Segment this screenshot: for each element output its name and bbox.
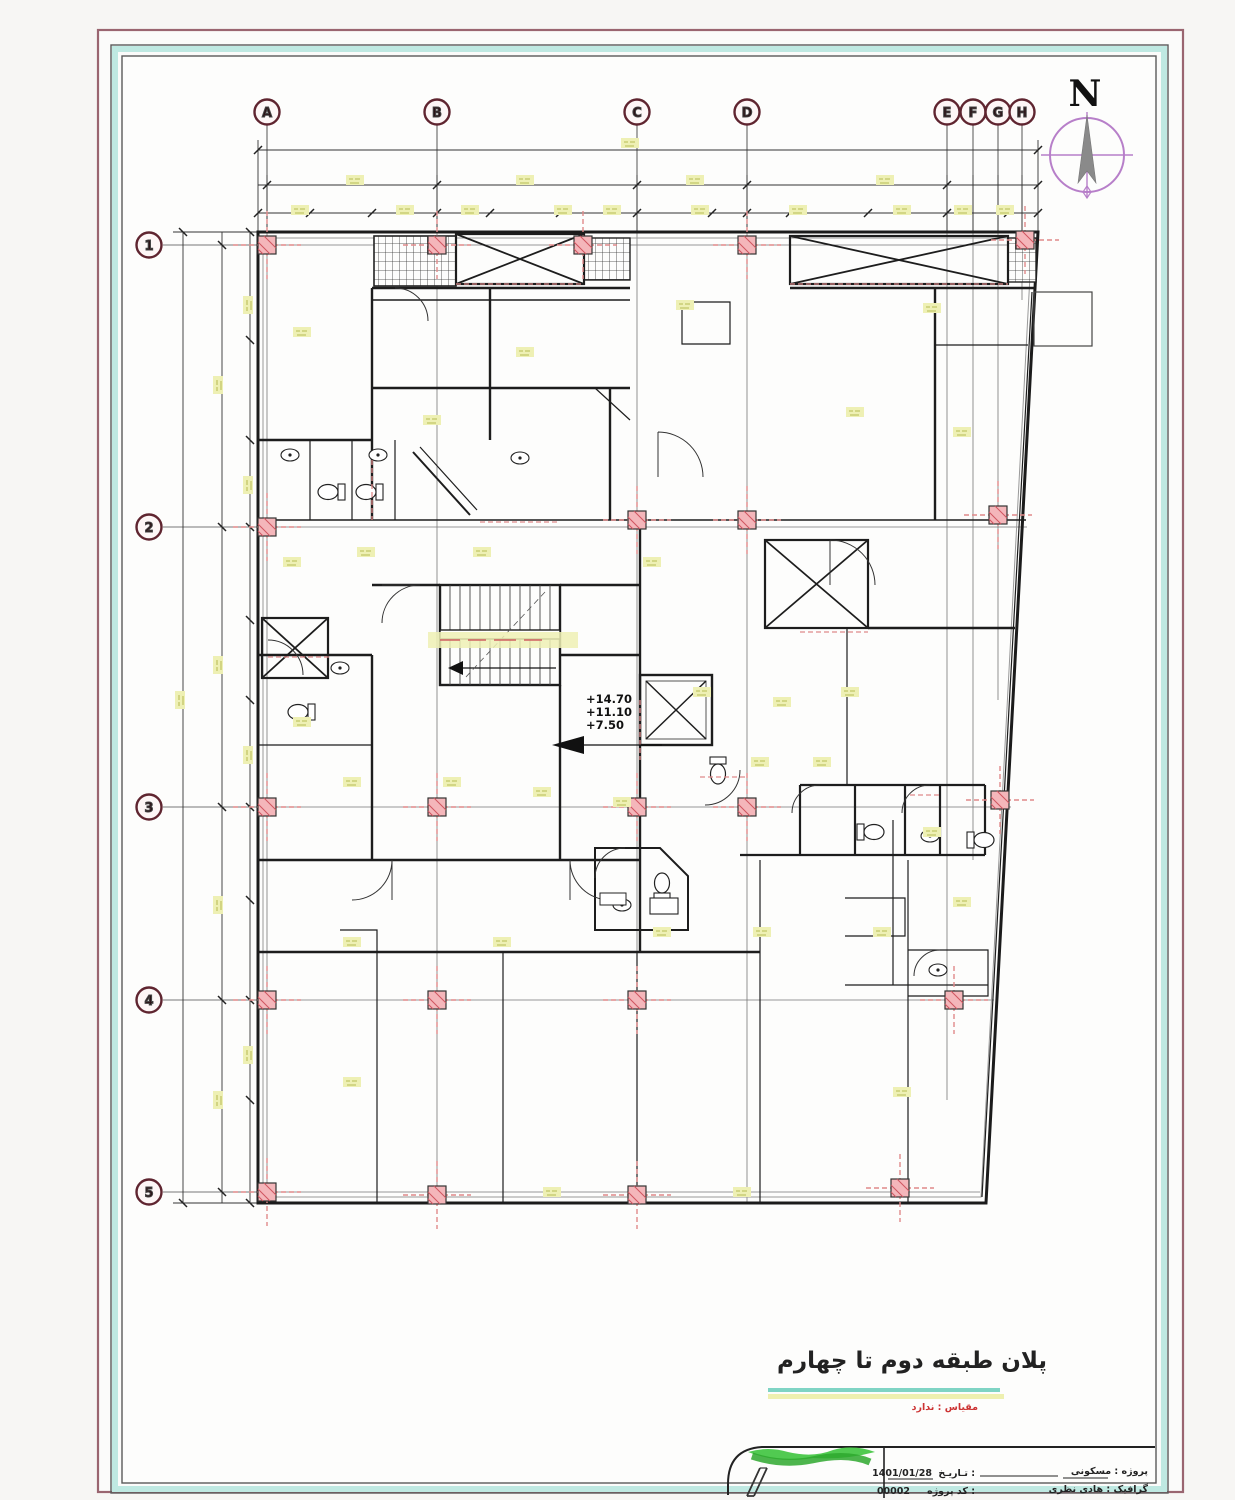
floor-plan-svg: N A B C D E F G H 1 2 [0, 0, 1235, 1500]
grid-bubble-3: 3 [137, 795, 162, 820]
grid-row-label-4: 4 [144, 994, 153, 1009]
scale-note: مقیاس : ندارد [912, 1402, 978, 1413]
grid-row-label-2: 2 [144, 521, 153, 536]
north-label: N [1069, 73, 1102, 115]
level-value-1: +14.70 [586, 692, 632, 706]
project-line: پروژه : مسکونی [1071, 1466, 1148, 1477]
toilet-icon [710, 757, 726, 784]
drawing-title: پلان طبقه دوم تا چهارم [777, 1348, 1047, 1374]
washer-box [650, 898, 678, 914]
drawing-sheet: N A B C D E F G H 1 2 [0, 0, 1235, 1500]
grid-bubble-2: 2 [137, 515, 162, 540]
grid-col-label-h: H [1017, 106, 1028, 121]
sheet-borders [0, 0, 1235, 1500]
toilet-icon [857, 824, 884, 840]
grid-bubble-G: G [986, 100, 1011, 125]
grid-row-label-5: 5 [144, 1186, 153, 1201]
date-value: 1401/01/28 [872, 1468, 932, 1479]
sink-icon [331, 662, 349, 674]
sink-icon [511, 452, 529, 464]
grid-row-label-3: 3 [144, 801, 153, 816]
grid-col-label-a: A [262, 106, 272, 121]
grid-col-label-e: E [943, 106, 952, 121]
grid-bubble-4: 4 [137, 988, 162, 1013]
title-teal-underline [768, 1388, 1000, 1392]
project-code-value: 00002 [877, 1486, 910, 1497]
toilet-icon [654, 873, 670, 900]
grid-bubble-5: 5 [137, 1180, 162, 1205]
grid-bubble-C: C [625, 100, 650, 125]
toilet-icon [967, 832, 994, 848]
grid-bubble-1: 1 [137, 233, 162, 258]
date-label: تـاریـخ : [938, 1468, 975, 1479]
grid-bubble-H: H [1010, 100, 1035, 125]
grid-bubble-F: F [961, 100, 986, 125]
designer-line: گرافیک : هادی نظری [1049, 1483, 1149, 1495]
sink-icon [369, 449, 387, 461]
grid-col-label-d: D [742, 106, 753, 121]
shelf-box [600, 893, 626, 905]
project-code-label: کد پروژه : [927, 1486, 975, 1497]
grid-bubble-B: B [425, 100, 450, 125]
grid-row-label-1: 1 [144, 239, 153, 254]
grid-bubble-D: D [735, 100, 760, 125]
grid-col-label-b: B [432, 106, 442, 121]
title-yellow-underline [768, 1394, 1004, 1399]
grid-bubble-A: A [255, 100, 280, 125]
level-value-3: +7.50 [586, 718, 624, 732]
sink-icon [929, 964, 947, 976]
toilet-icon [356, 484, 383, 500]
toilet-icon [318, 484, 345, 500]
sink-icon [281, 449, 299, 461]
level-value-2: +11.10 [586, 705, 632, 719]
grid-col-label-c: C [632, 106, 642, 121]
grid-col-label-g: G [993, 106, 1004, 121]
grid-bubble-E: E [935, 100, 960, 125]
grid-col-label-f: F [969, 106, 978, 121]
